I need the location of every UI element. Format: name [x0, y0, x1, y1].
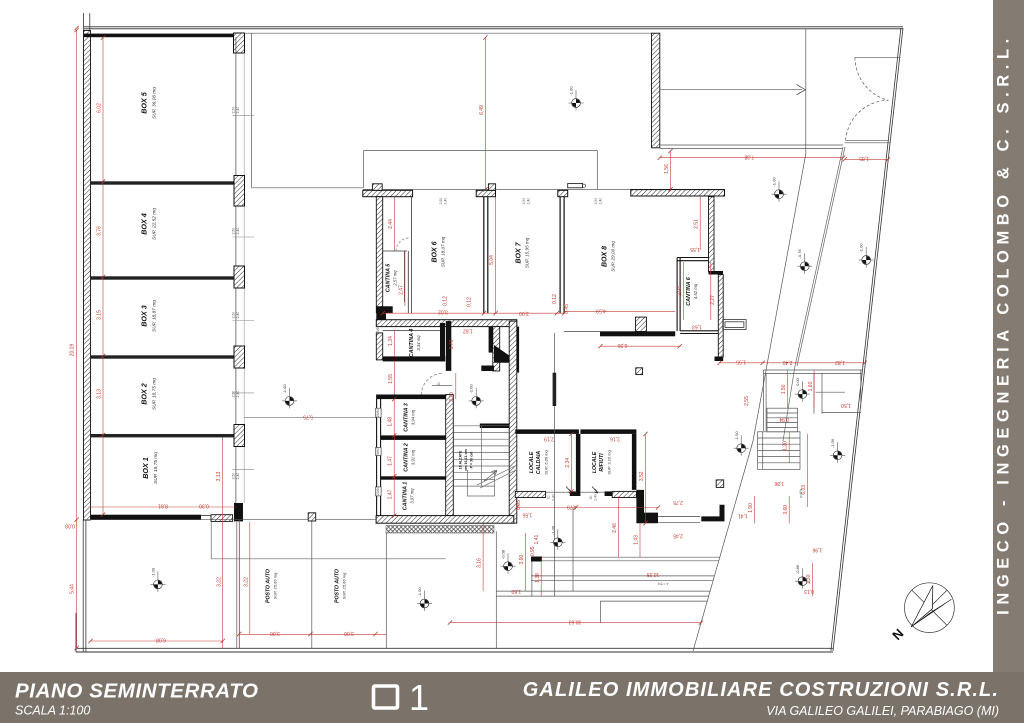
svg-text:CALDAIA: CALDAIA [536, 451, 542, 475]
svg-text:2,57 mq: 2,57 mq [393, 270, 398, 287]
svg-text:LOCALE: LOCALE [592, 451, 598, 473]
svg-text:1,50: 1,50 [841, 402, 851, 408]
svg-text:6,02: 6,02 [97, 103, 103, 113]
svg-text:-1.00: -1.00 [469, 384, 474, 394]
svg-text:SUP. 22,52 mq: SUP. 22,52 mq [152, 208, 158, 240]
svg-text:-1.00: -1.00 [151, 567, 156, 577]
svg-text:1,38: 1,38 [535, 573, 541, 583]
svg-text:2,50: 2,50 [232, 391, 236, 398]
svg-text:1,55: 1,55 [522, 512, 532, 518]
svg-text:3,90: 3,90 [519, 555, 525, 565]
svg-text:2,04: 2,04 [677, 286, 683, 296]
svg-text:-1.00: -1.00 [569, 86, 574, 96]
svg-text:2,19: 2,19 [544, 436, 554, 442]
svg-text:7,38: 7,38 [744, 154, 754, 160]
svg-text:3,22: 3,22 [217, 577, 223, 587]
svg-text:0.00: 0.00 [795, 377, 800, 386]
svg-text:1,50: 1,50 [511, 588, 521, 594]
svg-text:3,52: 3,52 [639, 471, 645, 481]
svg-text:2,50: 2,50 [594, 198, 598, 205]
svg-text:SUP. 15,95 mq: SUP. 15,95 mq [525, 237, 530, 268]
svg-text:2,27: 2,27 [710, 295, 716, 305]
svg-text:-1.00: -1.00 [859, 243, 864, 253]
svg-text:1,43: 1,43 [634, 535, 640, 545]
svg-text:2,51: 2,51 [694, 219, 700, 229]
svg-text:1,20: 1,20 [783, 441, 789, 451]
svg-text:2,50: 2,50 [232, 473, 236, 480]
svg-text:0,08: 0,08 [65, 523, 75, 529]
svg-text:3,15: 3,15 [97, 310, 103, 320]
svg-text:3,60: 3,60 [783, 505, 789, 515]
svg-text:2,40: 2,40 [783, 359, 793, 365]
svg-text:3,00: 3,00 [270, 630, 280, 636]
svg-text:4,59: 4,59 [596, 308, 606, 314]
svg-text:SUP. 36,06 mq: SUP. 36,06 mq [152, 87, 158, 119]
svg-text:30,63: 30,63 [569, 619, 582, 625]
svg-text:2,40: 2,40 [236, 391, 240, 398]
svg-text:-0.86: -0.86 [795, 564, 800, 574]
svg-text:10,35: 10,35 [647, 571, 660, 577]
svg-text:4,52 mq: 4,52 mq [693, 283, 698, 299]
svg-text:1,48: 1,48 [388, 417, 394, 427]
svg-text:SUP. 18,75 mq: SUP. 18,75 mq [153, 452, 159, 484]
svg-text:POSTO AUTO: POSTO AUTO [266, 569, 272, 603]
svg-text:2,50: 2,50 [439, 198, 443, 205]
svg-text:-0.78: -0.78 [797, 249, 802, 259]
svg-text:PIANO SEMINTERRATO: PIANO SEMINTERRATO [15, 680, 259, 703]
svg-text:2,50: 2,50 [232, 312, 236, 319]
svg-text:SUP. 6,06 mq: SUP. 6,06 mq [544, 450, 549, 475]
svg-text:1,50: 1,50 [781, 384, 787, 394]
svg-text:2,75: 2,75 [673, 499, 683, 505]
svg-text:2,40: 2,40 [527, 198, 531, 205]
svg-text:2,40: 2,40 [594, 494, 598, 501]
svg-text:1,90: 1,90 [748, 503, 754, 513]
svg-text:GALILEO IMMOBILIARE COSTRUZION: GALILEO IMMOBILIARE COSTRUZIONI S.R.L. [523, 679, 999, 701]
svg-text:3,00: 3,00 [519, 310, 529, 316]
svg-text:1,55: 1,55 [736, 359, 746, 365]
svg-text:0,12: 0,12 [443, 296, 449, 306]
svg-text:SUP. 15,66 mq: SUP. 15,66 mq [342, 572, 347, 599]
svg-text:BOX 8: BOX 8 [602, 246, 609, 267]
svg-text:25/60: 25/60 [376, 487, 380, 496]
svg-text:0,95: 0,95 [530, 546, 536, 556]
svg-text:3,97 mq: 3,97 mq [410, 488, 415, 504]
svg-text:2,40: 2,40 [236, 107, 240, 114]
svg-text:0,13: 0,13 [804, 588, 814, 594]
svg-text:25/60: 25/60 [376, 448, 380, 457]
svg-text:CANTINA 6: CANTINA 6 [686, 276, 692, 306]
svg-text:BOX 2: BOX 2 [140, 383, 149, 405]
svg-text:2,20: 2,20 [449, 392, 455, 402]
svg-text:SCALA 1:100: SCALA 1:100 [15, 704, 90, 718]
svg-text:1,70: 1,70 [449, 339, 455, 349]
svg-text:2,50: 2,50 [522, 198, 526, 205]
svg-text:2,40: 2,40 [552, 494, 556, 501]
svg-text:LOCALE: LOCALE [529, 451, 535, 473]
svg-text:2,34: 2,34 [565, 458, 571, 468]
svg-text:1: 1 [409, 677, 429, 718]
svg-text:6,36: 6,36 [617, 342, 627, 348]
svg-text:SUP. 18,75 mq: SUP. 18,75 mq [152, 378, 158, 410]
svg-text:1,55: 1,55 [388, 374, 394, 384]
svg-text:1,82: 1,82 [835, 359, 845, 365]
svg-text:18 ALZATE: 18 ALZATE [459, 450, 463, 469]
svg-text:2,45: 2,45 [673, 533, 683, 539]
svg-text:0,94: 0,94 [779, 416, 789, 422]
svg-text:VIA GALILEO GALILEI, PARABIAGO: VIA GALILEO GALILEI, PARABIAGO (MI) [766, 704, 999, 718]
svg-text:BOX 5: BOX 5 [140, 91, 149, 114]
svg-text:6,08: 6,08 [156, 637, 166, 643]
svg-text:RIFIUTI: RIFIUTI [599, 453, 605, 472]
svg-text:p=6%: p=6% [799, 489, 803, 498]
svg-text:1,60: 1,60 [808, 381, 814, 391]
svg-text:SUP. 18,07 mq: SUP. 18,07 mq [441, 236, 446, 267]
svg-text:3,16: 3,16 [477, 558, 483, 568]
svg-text:CANTINA 3: CANTINA 3 [404, 403, 410, 432]
svg-text:6,49: 6,49 [479, 105, 485, 115]
svg-text:25/60: 25/60 [376, 326, 380, 335]
svg-text:SUP. 18,87 mq: SUP. 18,87 mq [152, 300, 158, 332]
svg-text:BOX 1: BOX 1 [141, 457, 150, 479]
svg-text:2,55: 2,55 [744, 396, 750, 406]
svg-text:1,30: 1,30 [806, 574, 812, 584]
svg-text:SUP. 29,00 mq: SUP. 29,00 mq [611, 241, 616, 272]
svg-text:1,47: 1,47 [388, 489, 394, 499]
svg-text:SUP. 3,10 mq: SUP. 3,10 mq [607, 450, 612, 475]
svg-text:BOX 7: BOX 7 [516, 241, 523, 263]
svg-text:3,91 mq: 3,91 mq [411, 449, 416, 465]
svg-text:2,46: 2,46 [612, 523, 618, 533]
svg-text:1,86: 1,86 [774, 480, 784, 486]
svg-text:CANTINA 1: CANTINA 1 [403, 482, 409, 511]
svg-text:25/60: 25/60 [376, 409, 380, 418]
svg-text:-1.00: -1.00 [550, 525, 555, 535]
svg-text:2,50: 2,50 [232, 107, 236, 114]
svg-text:1,47: 1,47 [388, 456, 394, 466]
svg-text:70: 70 [547, 496, 551, 500]
svg-text:1,55: 1,55 [690, 246, 700, 252]
svg-text:cm 16,61 cm: cm 16,61 cm [464, 449, 468, 470]
svg-text:2,47: 2,47 [399, 285, 405, 295]
svg-text:CANTINA 4: CANTINA 4 [409, 329, 415, 358]
svg-text:-0.08: -0.08 [501, 549, 506, 559]
svg-text:3,94 mq: 3,94 mq [411, 409, 416, 425]
svg-text:5,75: 5,75 [303, 414, 313, 420]
svg-text:0,12: 0,12 [467, 297, 473, 307]
svg-text:5,04: 5,04 [489, 255, 495, 265]
svg-text:1,96: 1,96 [812, 547, 822, 553]
svg-text:2,40: 2,40 [236, 228, 240, 235]
svg-text:1,85: 1,85 [859, 155, 869, 161]
svg-text:0,30: 0,30 [199, 503, 209, 509]
svg-text:1,41: 1,41 [534, 535, 540, 545]
svg-text:20,19: 20,19 [70, 344, 76, 357]
svg-text:POSTO AUTO: POSTO AUTO [335, 569, 341, 603]
svg-text:2,40: 2,40 [236, 473, 240, 480]
svg-text:BOX 3: BOX 3 [140, 305, 149, 327]
svg-text:1,56: 1,56 [664, 164, 670, 174]
svg-text:8,61: 8,61 [158, 503, 168, 509]
svg-text:90: 90 [589, 496, 593, 500]
svg-text:2,16: 2,16 [610, 436, 620, 442]
svg-text:1,62: 1,62 [463, 328, 473, 334]
svg-text:2,44: 2,44 [388, 219, 394, 229]
svg-text:-1.00: -1.00 [417, 587, 422, 597]
svg-text:4 = 5%: 4 = 5% [658, 582, 669, 586]
svg-text:SUP. 15,66 mq: SUP. 15,66 mq [273, 572, 278, 599]
svg-text:3,22: 3,22 [244, 577, 250, 587]
svg-text:1,41: 1,41 [738, 513, 748, 519]
svg-text:1,34: 1,34 [388, 336, 394, 346]
svg-text:-1.00: -1.00 [830, 438, 835, 448]
svg-text:BOX 6: BOX 6 [432, 241, 439, 262]
svg-text:3,34 mq: 3,34 mq [416, 335, 421, 351]
svg-text:3,76: 3,76 [97, 226, 103, 236]
svg-text:0,95: 0,95 [516, 500, 522, 510]
svg-text:CANTINA 2: CANTINA 2 [404, 443, 410, 472]
svg-text:2,40: 2,40 [236, 312, 240, 319]
svg-text:80: 80 [437, 382, 441, 386]
svg-text:P = 30 cm: P = 30 cm [470, 452, 474, 469]
svg-text:5,44: 5,44 [70, 584, 76, 594]
svg-text:-1.00: -1.00 [282, 384, 287, 394]
svg-text:2,40: 2,40 [444, 198, 448, 205]
svg-text:CANTINA 5: CANTINA 5 [386, 263, 392, 293]
svg-text:INGECO - INGEGNERIA COLOMBO &: INGECO - INGEGNERIA COLOMBO & C. S.R.L. [995, 33, 1013, 615]
svg-text:0,12: 0,12 [552, 294, 558, 304]
svg-text:-1.00: -1.00 [772, 177, 777, 187]
svg-text:3,13: 3,13 [97, 389, 103, 399]
svg-text:2,50: 2,50 [232, 228, 236, 235]
svg-text:3,00: 3,00 [344, 630, 354, 636]
svg-text:3,13: 3,13 [216, 471, 222, 481]
svg-text:BOX 4: BOX 4 [140, 213, 149, 235]
svg-text:2,40: 2,40 [599, 198, 603, 205]
svg-text:-1.00: -1.00 [734, 431, 739, 441]
svg-text:1,63: 1,63 [692, 324, 702, 330]
svg-text:3,02: 3,02 [438, 309, 448, 315]
